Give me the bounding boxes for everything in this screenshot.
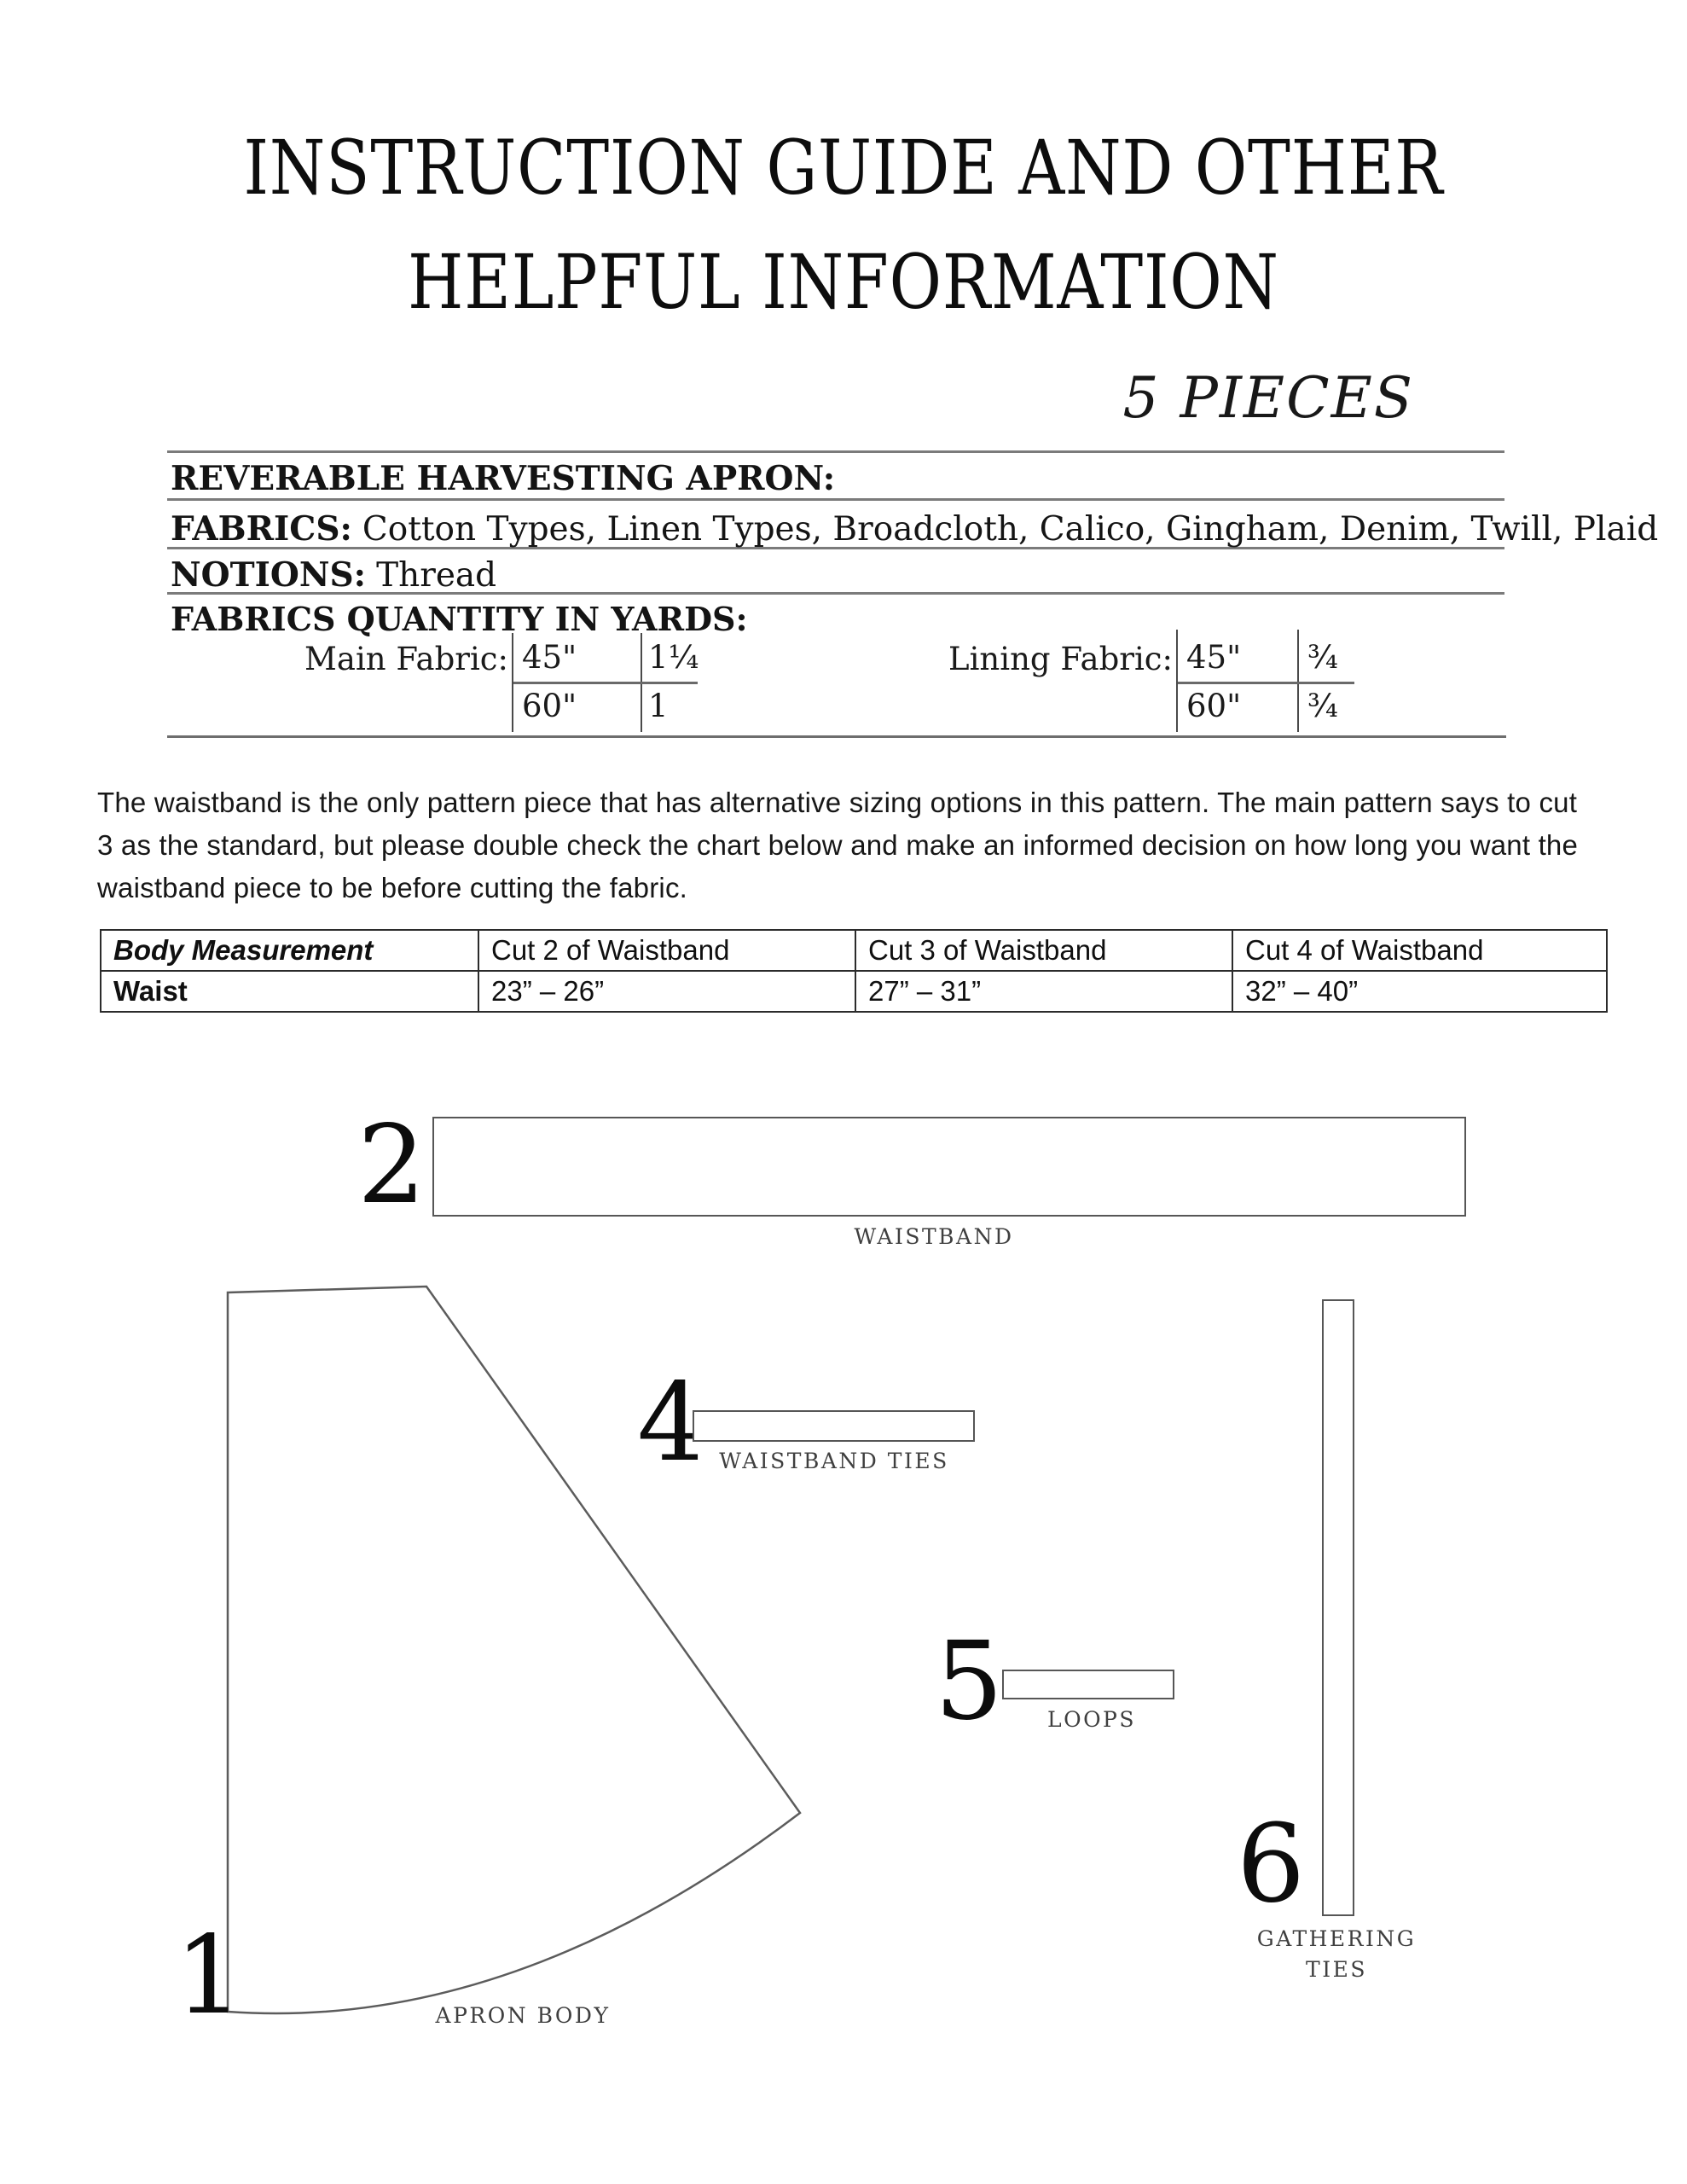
rule-under-name bbox=[167, 498, 1504, 501]
gathering-ties-piece-label: GATHERING TIES bbox=[1230, 1924, 1443, 1985]
sizing-header-cut3: Cut 3 of Waistband bbox=[855, 930, 1232, 971]
main-fabric-width-1: 45" bbox=[522, 639, 577, 676]
gathering-ties-piece-shape bbox=[1322, 1299, 1354, 1916]
rule-top bbox=[167, 450, 1504, 453]
rule-bottom bbox=[167, 735, 1506, 738]
sizing-table-waist-row: Waist 23” – 26” 27” – 31” 32” – 40” bbox=[101, 971, 1607, 1012]
pattern-name: REVERABLE HARVESTING APRON: bbox=[171, 459, 835, 498]
lining-fabric-width-1: 45" bbox=[1186, 639, 1241, 676]
lining-fabric-divider-1 bbox=[1176, 630, 1178, 732]
waistband-piece-shape bbox=[432, 1117, 1466, 1217]
piece-number-waistband: 2 bbox=[357, 1112, 426, 1219]
lining-fabric-yards-2: ¾ bbox=[1307, 688, 1338, 724]
lining-fabric-row-divider bbox=[1178, 682, 1354, 684]
main-fabric-label: Main Fabric: bbox=[239, 641, 508, 677]
apron-body-outline bbox=[228, 1287, 800, 2013]
main-fabric-yards-1: 1¼ bbox=[648, 639, 699, 676]
quantity-heading-row: FABRICS QUANTITY IN YARDS: bbox=[171, 600, 748, 638]
page-title-line1: INSTRUCTION GUIDE AND OTHER bbox=[126, 111, 1560, 225]
sizing-table-header-row: Body Measurement Cut 2 of Waistband Cut … bbox=[101, 930, 1607, 971]
apron-body-piece-label: APRON BODY bbox=[352, 2001, 693, 2031]
page-title: INSTRUCTION GUIDE AND OTHER HELPFUL INFO… bbox=[126, 111, 1560, 340]
waistband-note-paragraph: The waistband is the only pattern piece … bbox=[97, 781, 1595, 909]
page-title-line2: HELPFUL INFORMATION bbox=[126, 225, 1560, 340]
sizing-value-cut3: 27” – 31” bbox=[855, 971, 1232, 1012]
fabrics-label: FABRICS: bbox=[171, 509, 352, 549]
quantity-heading: FABRICS QUANTITY IN YARDS: bbox=[171, 600, 748, 638]
loops-piece-label: LOOPS bbox=[964, 1705, 1220, 1735]
fabrics-value: Cotton Types, Linen Types, Broadcloth, C… bbox=[362, 510, 1658, 549]
main-fabric-width-2: 60" bbox=[522, 688, 577, 724]
loops-piece-shape bbox=[1002, 1670, 1174, 1699]
pieces-count-note: 5 PIECES bbox=[1122, 365, 1414, 431]
sizing-value-cut4: 32” – 40” bbox=[1232, 971, 1607, 1012]
sizing-header-cut2: Cut 2 of Waistband bbox=[478, 930, 855, 971]
pattern-name-row: REVERABLE HARVESTING APRON: bbox=[171, 459, 835, 498]
lining-fabric-label: Lining Fabric: bbox=[904, 641, 1173, 677]
waistband-piece-label: WAISTBAND bbox=[763, 1222, 1104, 1252]
main-fabric-row-divider bbox=[513, 682, 698, 684]
sizing-header-cut4: Cut 4 of Waistband bbox=[1232, 930, 1607, 971]
waistband-ties-piece-shape bbox=[693, 1410, 975, 1442]
piece-number-gathering-ties: 6 bbox=[1237, 1810, 1305, 1918]
main-fabric-yards-2: 1 bbox=[648, 688, 669, 724]
instruction-guide-page: INSTRUCTION GUIDE AND OTHER HELPFUL INFO… bbox=[0, 0, 1687, 2184]
piece-number-apron-body: 1 bbox=[175, 1922, 243, 2030]
sizing-row-label: Waist bbox=[101, 971, 478, 1012]
sizing-value-cut2: 23” – 26” bbox=[478, 971, 855, 1012]
waistband-sizing-table: Body Measurement Cut 2 of Waistband Cut … bbox=[100, 929, 1608, 1013]
notions-label: NOTIONS: bbox=[171, 555, 366, 595]
notions-row: NOTIONS:Thread bbox=[171, 555, 496, 595]
notions-value: Thread bbox=[376, 556, 496, 595]
fabrics-row: FABRICS:Cotton Types, Linen Types, Broad… bbox=[171, 509, 1658, 549]
lining-fabric-divider-2 bbox=[1297, 630, 1299, 732]
lining-fabric-width-2: 60" bbox=[1186, 688, 1241, 724]
waistband-ties-piece-label: WAISTBAND TIES bbox=[621, 1446, 1047, 1477]
sizing-header-body-measurement: Body Measurement bbox=[101, 930, 478, 971]
lining-fabric-yards-1: ¾ bbox=[1307, 639, 1338, 676]
